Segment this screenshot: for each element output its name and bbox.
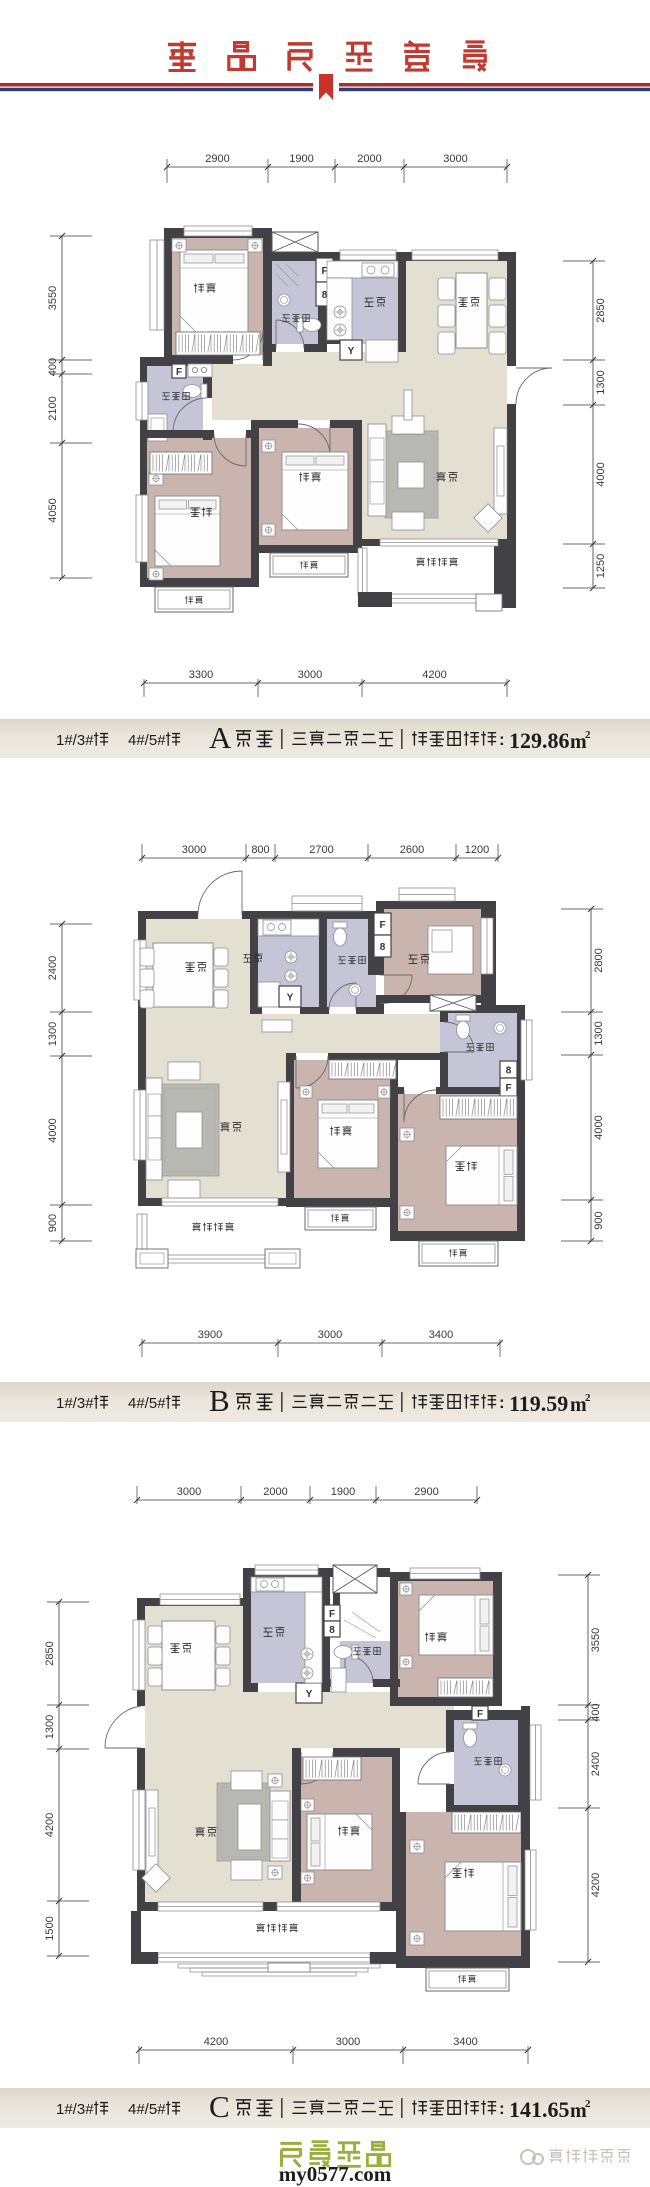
svg-text:8: 8 [506,1066,512,1077]
svg-text:3550: 3550 [47,286,59,310]
svg-text:1900: 1900 [289,153,313,165]
svg-text:2: 2 [585,1392,591,1404]
svg-text:2000: 2000 [357,153,381,165]
svg-text:Y: Y [287,993,294,1004]
svg-text:800: 800 [251,844,269,856]
svg-text:3000: 3000 [318,1329,342,1341]
svg-text:F: F [505,1083,511,1094]
svg-text:Y: Y [306,1689,313,1700]
svg-text:2100: 2100 [47,396,59,420]
svg-text:1#/3#: 1#/3# [56,2101,94,2118]
svg-text:1300: 1300 [595,370,607,394]
svg-text:2600: 2600 [400,844,424,856]
svg-text:900: 900 [593,1211,605,1229]
svg-text:4200: 4200 [422,669,446,681]
svg-text::: : [499,730,505,749]
svg-text:3000: 3000 [177,1486,201,1498]
svg-text:4#/5#: 4#/5# [128,732,166,749]
svg-text:2000: 2000 [263,1486,287,1498]
svg-text:2700: 2700 [309,844,333,856]
svg-text:3400: 3400 [453,2036,477,2048]
svg-text:3000: 3000 [336,2036,360,2048]
svg-text:129.86: 129.86 [509,728,570,753]
svg-text:4200: 4200 [590,1873,602,1897]
svg-text::: : [499,2099,505,2118]
svg-text:3000: 3000 [443,153,467,165]
svg-text:3550: 3550 [590,1628,602,1652]
svg-text:Y: Y [348,346,355,357]
svg-text:2850: 2850 [595,298,607,322]
svg-text:F: F [477,1709,483,1720]
svg-text:2: 2 [585,729,591,741]
svg-text:4#/5#: 4#/5# [128,2101,166,2118]
svg-text:2800: 2800 [593,948,605,972]
svg-text:141.65: 141.65 [509,2097,570,2122]
svg-text:2900: 2900 [414,1486,438,1498]
svg-text:4200: 4200 [204,2036,228,2048]
svg-text:1300: 1300 [593,1021,605,1045]
svg-text:400: 400 [590,1703,602,1721]
svg-text:3400: 3400 [429,1329,453,1341]
svg-text:4000: 4000 [593,1115,605,1139]
svg-text:2900: 2900 [205,153,229,165]
svg-text:B: B [209,1383,230,1418]
svg-text:F: F [329,1609,335,1620]
svg-text:4000: 4000 [47,1118,59,1142]
svg-text:119.59: 119.59 [509,1391,568,1416]
svg-text:1500: 1500 [44,1916,56,1940]
svg-text:3000: 3000 [298,669,322,681]
svg-text:3900: 3900 [198,1329,222,1341]
svg-text:8: 8 [380,942,386,953]
svg-text:C: C [209,2089,230,2124]
svg-text:F: F [379,920,385,931]
svg-text:4#/5#: 4#/5# [128,1395,166,1412]
svg-text:1300: 1300 [47,1022,59,1046]
svg-text:my0577.com: my0577.com [279,2162,392,2186]
svg-text:900: 900 [47,1214,59,1232]
svg-text::: : [499,1393,505,1412]
svg-text:1200: 1200 [465,844,489,856]
svg-text:4050: 4050 [47,498,59,522]
svg-text:1250: 1250 [595,554,607,578]
svg-text:1#/3#: 1#/3# [56,1395,94,1412]
svg-text:1#/3#: 1#/3# [56,732,94,749]
svg-text:2: 2 [585,2098,591,2110]
svg-text:1900: 1900 [331,1486,355,1498]
svg-text:1300: 1300 [44,1715,56,1739]
svg-text:2400: 2400 [47,956,59,980]
svg-text:400: 400 [47,358,59,376]
svg-text:4000: 4000 [595,462,607,486]
svg-text:3300: 3300 [189,669,213,681]
svg-text:A: A [209,720,232,755]
svg-text:2400: 2400 [590,1752,602,1776]
svg-text:3000: 3000 [182,844,206,856]
svg-text:2850: 2850 [44,1641,56,1665]
svg-text:8: 8 [329,1625,335,1636]
svg-text:4200: 4200 [44,1813,56,1837]
svg-text:F: F [176,367,182,378]
